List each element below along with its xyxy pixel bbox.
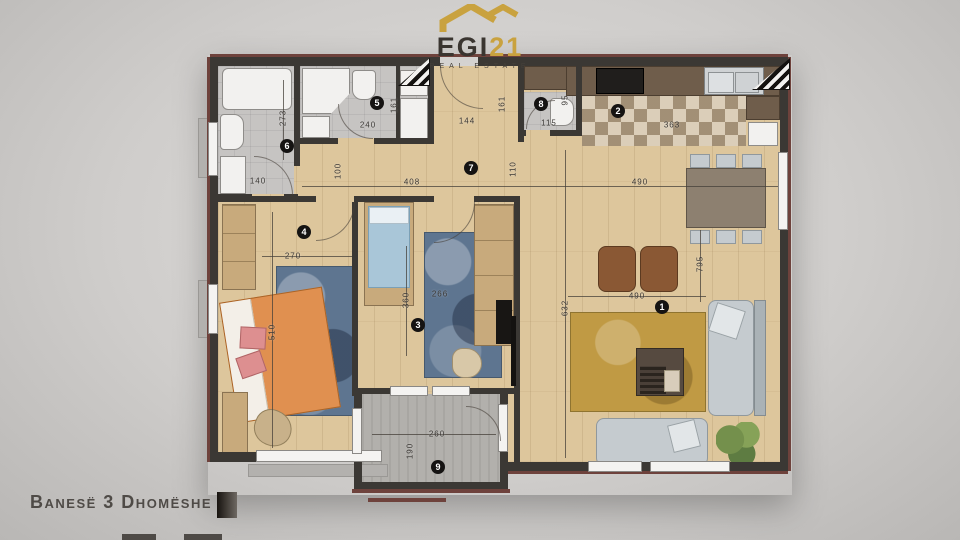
dim-label: 95 (561, 95, 570, 106)
wall (294, 66, 300, 166)
wall (576, 66, 582, 136)
wall (374, 138, 432, 144)
dim-label: 140 (250, 177, 266, 186)
cooktop (596, 68, 644, 94)
window (588, 461, 642, 472)
dining-chair (716, 230, 736, 244)
balcony-door-panel (432, 386, 470, 396)
sink-vanity (220, 156, 246, 194)
pink-cushion (239, 326, 266, 349)
brand-text: EGI (437, 32, 490, 62)
wall (518, 130, 526, 136)
wall (470, 388, 520, 394)
dining-chair (716, 154, 736, 168)
dim-label: 161 (498, 96, 507, 112)
window (650, 461, 730, 472)
balcony-wall (354, 482, 508, 489)
window (208, 284, 218, 334)
wall-trim (368, 498, 446, 502)
dim-label: 490 (629, 292, 645, 301)
side-chair (664, 370, 680, 392)
dining-table (686, 168, 766, 228)
toilet (352, 70, 376, 100)
wall-trim (352, 489, 510, 493)
dim-label: 360 (402, 292, 411, 308)
fridge (748, 122, 778, 146)
window-sill (248, 464, 388, 477)
potted-plant (716, 422, 762, 466)
window (778, 152, 788, 230)
window (208, 122, 218, 176)
armchair (640, 246, 678, 292)
sink (302, 116, 330, 138)
dimension-line (262, 256, 352, 257)
armchair (598, 246, 636, 292)
bathtub (222, 68, 292, 110)
balcony-door (498, 404, 508, 452)
balcony-window (352, 408, 362, 454)
sofa-back (754, 300, 766, 416)
dim-label: 490 (632, 178, 648, 187)
brand-tagline: REAL ESTATE (0, 63, 960, 70)
room-marker-bathroom: 5 (370, 96, 384, 110)
dining-chair (742, 154, 762, 168)
kitchen-sink (704, 67, 764, 95)
toilet (220, 114, 244, 150)
bed-pillow (369, 207, 409, 224)
wall (352, 202, 358, 396)
wall-trim (788, 57, 791, 471)
room-marker-bedroom: 4 (297, 225, 311, 239)
dim-label: 260 (429, 430, 445, 439)
dim-label: 161 (390, 97, 399, 113)
dim-label: 144 (459, 117, 475, 126)
sink-basin (708, 72, 734, 93)
balcony-door-panel (390, 386, 428, 396)
wall (298, 138, 338, 144)
sink-counter (400, 98, 428, 140)
window (256, 450, 382, 462)
wall (358, 388, 390, 394)
wall (218, 196, 316, 202)
dim-label: 408 (404, 178, 420, 187)
cropped-shape (122, 534, 156, 540)
room-marker-wc: 8 (534, 97, 548, 111)
dim-label: 632 (561, 300, 570, 316)
wall-trim (506, 471, 788, 474)
wall (354, 196, 434, 202)
dim-label: 510 (268, 324, 277, 340)
dim-label: 110 (509, 161, 518, 177)
logo: EGI21 REAL ESTATE (0, 4, 960, 70)
room-marker-balcony: 9 (431, 460, 445, 474)
dim-label: 100 (334, 163, 343, 179)
dining-chair (742, 230, 762, 244)
dim-label: 270 (285, 252, 301, 261)
dim-label: 240 (360, 121, 376, 130)
room-marker-kitchen: 2 (611, 104, 625, 118)
wall (210, 57, 218, 462)
dim-label: 795 (696, 256, 705, 272)
room-marker-hallway: 7 (464, 161, 478, 175)
cropped-shape (184, 534, 222, 540)
dim-label: 115 (541, 119, 557, 128)
dimension-line (302, 186, 778, 187)
chair (452, 348, 482, 378)
caption-block (217, 492, 237, 518)
dim-label: 266 (432, 290, 448, 299)
kitchen-cabinet (746, 96, 780, 120)
brand-number: 21 (489, 32, 523, 62)
dim-label: 363 (664, 121, 680, 130)
room-marker-living-room: 1 (655, 300, 669, 314)
tv (511, 316, 516, 386)
dim-label: 273 (279, 110, 288, 126)
roof-icon (437, 4, 523, 34)
wardrobe (222, 204, 256, 290)
dining-chair (690, 154, 710, 168)
room-marker-bathroom: 6 (280, 139, 294, 153)
plan-caption: Banesë 3 Dhomëshe (30, 492, 212, 513)
brand-name: EGI21 (0, 34, 960, 61)
wardrobe-tv (496, 300, 512, 344)
wall (506, 462, 788, 471)
floor-plan-scene: EGI21 REAL ESTATE (0, 0, 960, 540)
dim-label: 190 (406, 443, 415, 459)
wall (780, 57, 788, 471)
room-marker-bedroom: 3 (411, 318, 425, 332)
fireplace-grate (640, 366, 666, 394)
